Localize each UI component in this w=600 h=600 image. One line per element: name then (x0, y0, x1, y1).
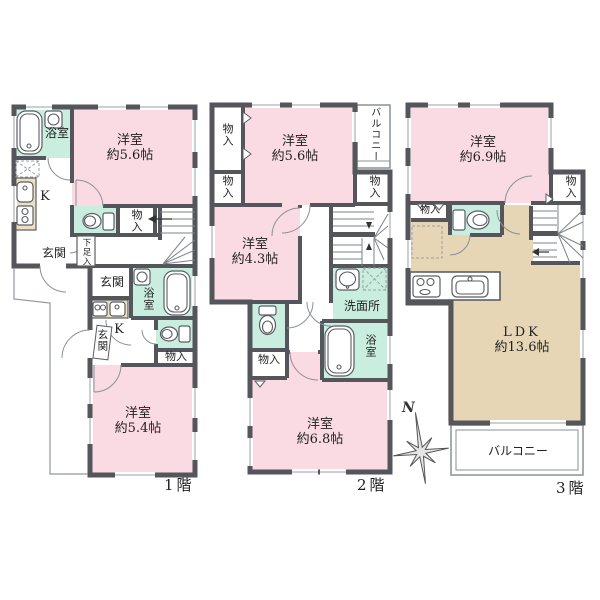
floor2-bedroom1-size: 約5.6帖 (261, 149, 329, 164)
floor1-bathroom2-label: 浴室 (141, 287, 154, 311)
floorplan: 浴室 洋室約5.6帖 K 物入 玄関 下足入 玄関 浴室 K 玄関 物入 洋室約… (0, 0, 600, 600)
floor2-washroom-label: 洗面所 (335, 299, 389, 313)
floor3-balcony-label: バルコニー (482, 444, 554, 458)
floor2-bedroom2-name: 洋室 (221, 237, 289, 252)
floor3-hall (504, 205, 531, 237)
floor2-bedroom2-size: 約4.3帖 (221, 252, 289, 267)
floor2-stairs (333, 212, 388, 266)
floor1-closet2-label: 物入 (160, 351, 192, 364)
floor2-balcony-label: バルコニー (368, 107, 380, 162)
floor2-closet-inner-label: 物入 (252, 354, 286, 367)
floor3-kitchen-sink-icon (452, 276, 488, 297)
floor1-entry-door-opening (40, 263, 66, 270)
floor2-bedroom3-name: 洋室 (286, 417, 354, 432)
floor2-bedroom1-label: 洋室約5.6帖 (261, 134, 329, 165)
floor3-bedroom-label: 洋室約6.9帖 (449, 135, 517, 166)
floor3-caption: 3階 (556, 480, 587, 498)
floor2-bathroom-label: 浴室 (363, 334, 376, 358)
floor1-kitchen-label: K (38, 189, 52, 204)
floor1-porch-outline (14, 268, 88, 474)
floor1-closet-label: 物入 (129, 209, 142, 233)
floor1-entrance-label: 玄関 (37, 246, 71, 260)
floor1-bedroom2-label: 洋室約5.4帖 (104, 406, 172, 437)
floor1-kitchen-sink-icon (17, 182, 33, 202)
floor3-closet-right-label: 物入 (563, 175, 576, 199)
floor1-entry2-door-opening (87, 330, 94, 358)
floor2-bedroom2-label: 洋室約4.3帖 (221, 237, 289, 268)
floor3-closet-left-label: 物入 (411, 205, 449, 217)
floorplan-drawing (0, 0, 600, 600)
floor3-bedroom-name: 洋室 (449, 135, 517, 150)
floor2-bedroom3-size: 約6.8帖 (286, 432, 354, 447)
floor1-entrance2-label: 玄関 (95, 275, 129, 289)
floor2-washbasin-icon (336, 269, 359, 290)
floor1-stove2-icon (93, 302, 107, 316)
floor1-bedroom2-size: 約5.4帖 (104, 421, 172, 436)
floor1-bedroom-label: 洋室約5.6帖 (96, 133, 164, 164)
floor1-bathtub2-icon (164, 271, 190, 315)
compass-north-label: N (402, 400, 415, 417)
floor1-bedroom-size: 約5.6帖 (96, 148, 164, 163)
floor2-closet-mid-left-label: 物入 (220, 175, 233, 199)
floor1-kitchen2-sink-icon (110, 302, 125, 316)
floor2-closet-top-left-label: 物入 (220, 123, 233, 147)
compass-icon (388, 408, 453, 487)
floor1-kitchen2-label: K (112, 322, 126, 337)
floor2-caption: 2階 (357, 477, 388, 495)
floor1-stairs (148, 212, 195, 264)
floor1-bathroom-label: 浴室 (41, 126, 73, 140)
floor3-stove-icon (413, 276, 440, 297)
floor1-washer-space-icon (16, 161, 39, 177)
floor2-bedroom1-name: 洋室 (261, 134, 329, 149)
floor1-stove-icon (17, 206, 33, 225)
floor1-caption: 1階 (164, 477, 195, 495)
floor2-bathtub-icon (325, 326, 354, 376)
floor1-bathtub-icon (17, 111, 42, 154)
floor2-toilet-icon (259, 306, 276, 335)
floor3-bedroom-size: 約6.9帖 (449, 150, 517, 165)
floor1-bedroom2-name: 洋室 (104, 406, 172, 421)
floor3-toilet-icon (453, 210, 489, 230)
floor1-entrance2-door-label: 玄関 (96, 329, 108, 352)
floor1-shoe-closet-label: 下足入 (81, 238, 91, 267)
floor1-bath2-sink-icon (134, 269, 150, 285)
floor3-ldk-size: 約13.6帖 (487, 340, 557, 355)
floor2-bedroom3-label: 洋室約6.8帖 (286, 417, 354, 448)
floor1-bedroom-name: 洋室 (96, 133, 164, 148)
floor2-closet-right-label: 物入 (367, 175, 380, 199)
floor3-ldk-name: LDK (487, 325, 557, 340)
floor3-ldk-label: LDK約13.6帖 (487, 325, 557, 356)
